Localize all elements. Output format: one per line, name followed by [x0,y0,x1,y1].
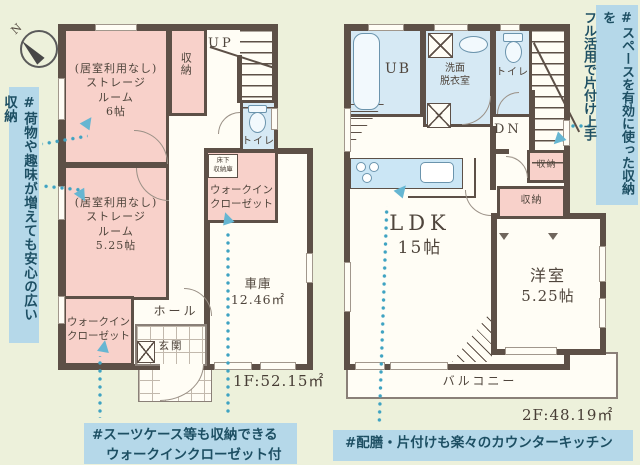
floor2-area-label: 2F:48.19㎡ [522,406,613,426]
stairs-1f [240,30,275,110]
toilet-bowl-icon-1f [249,112,266,133]
window-2f-left-b [344,262,351,312]
dotted-line-wic-upper [224,230,232,416]
window-western-right-a [599,246,606,282]
stove-burner-icon-b [369,162,379,172]
compass-needle-icon [18,37,44,64]
window-western-bottom [505,347,557,355]
closet-door-mark-b [548,233,558,240]
note-bottom-left: #スーツケース等も収納できる ウォークインクローゼット付 [84,423,297,464]
stairs-dn-label: DN [494,122,522,139]
compass [20,30,58,68]
ub-label: UB [385,60,411,78]
compass-north-label: N [9,20,27,38]
dotted-line-wic-lower [96,356,104,418]
floor1-area-label: 1F:52.15㎡ [233,372,324,392]
garage-door-gap-b [260,362,296,370]
window-2f-top-c [500,24,520,31]
storage6-label: (居室利用なし)ストレージルーム6帖 [63,62,169,119]
window-1f-toilet [271,108,278,130]
toilet-1f-label: トイレ [240,135,277,148]
entrance-label: 玄関 [135,340,207,354]
closet-2f-b-label: 収納 [497,194,566,207]
window-2f-top-b [434,24,468,31]
hall-label: ホール [145,304,207,320]
wall-hall-bottom [493,149,509,154]
wall-hall-stairs [529,90,535,152]
window-garage-right [306,253,313,283]
closet-1f-label: 収納 [178,52,192,76]
stove-burner-icon-a [356,162,366,172]
kitchen-sink-icon [420,162,454,183]
washroom-label: 洗面脱衣室 [426,62,484,88]
note-right: #スペースを有効に使った収納をフル活用で片付け上手 [596,5,638,205]
washing-machine-icon [428,33,453,58]
window-western-right-b [599,298,606,328]
sliding-door-ldk-b [390,362,448,370]
floor-plan-page: N (居室利用なし)ストレージルーム6帖 (居室利用なし)ストレージルーム5.2… [0,0,640,465]
closet-2f-a-label: 収納 [527,160,566,172]
storage525-label: (居室利用なし)ストレージルーム5.25帖 [63,196,169,253]
closet-door-mark-a [499,233,509,240]
garage-door-gap-a [214,362,252,370]
underfloor-label: 床下収納庫 [208,156,238,174]
note-left: #荷物や趣味が増えても安心の広い収納 [9,87,39,343]
balcony-label: バルコニー [430,374,530,390]
stairs-up-label: UP [208,36,234,53]
column-marker-icon [427,103,451,128]
window-1f-top [95,24,137,31]
bathtub-icon [353,33,380,110]
western-room-label: 洋室5.25帖 [505,266,591,306]
note-bottom-right: #配膳・片付けも楽々のカウンターキッチン [333,430,633,461]
wic-upper-label: ウォークインクローゼット [205,184,278,211]
stove-burner-icon-c [362,173,372,183]
toilet-2f-label: トイレ [493,66,532,79]
wall-toilet-1f [237,55,242,103]
window-2f-left-a [344,108,351,152]
toilet-bowl-icon-2f [505,41,522,63]
washbasin-icon [459,36,488,53]
arrow-wic-lower [97,339,111,353]
window-2f-top-a [368,24,404,31]
